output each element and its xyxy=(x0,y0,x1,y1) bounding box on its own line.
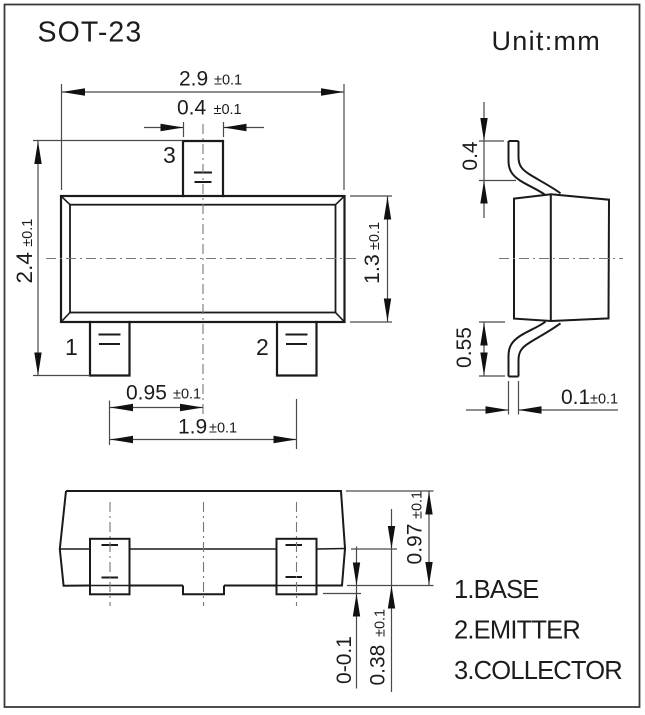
svg-text:1: 1 xyxy=(65,334,78,360)
svg-text:2.EMITTER: 2.EMITTER xyxy=(454,617,580,645)
svg-text:0.38: 0.38 xyxy=(367,645,390,686)
svg-text:0.95: 0.95 xyxy=(126,382,167,405)
svg-text:2.9: 2.9 xyxy=(179,68,208,91)
svg-text:2: 2 xyxy=(256,334,269,360)
svg-text:0.4: 0.4 xyxy=(459,141,482,171)
svg-text:0.1: 0.1 xyxy=(561,386,590,409)
svg-text:0.55: 0.55 xyxy=(453,327,476,368)
svg-text:±0.1: ±0.1 xyxy=(20,219,36,247)
svg-text:±0.1: ±0.1 xyxy=(214,102,242,118)
svg-text:SOT-23: SOT-23 xyxy=(38,17,143,49)
svg-text:Unit:mm: Unit:mm xyxy=(492,26,602,56)
svg-text:0.97: 0.97 xyxy=(404,524,427,565)
svg-text:±0.1: ±0.1 xyxy=(209,421,237,437)
svg-text:1.9: 1.9 xyxy=(178,416,207,439)
svg-text:0.4: 0.4 xyxy=(177,97,207,120)
svg-text:±0.1: ±0.1 xyxy=(367,222,383,250)
svg-text:±0.1: ±0.1 xyxy=(590,392,618,408)
svg-text:±0.1: ±0.1 xyxy=(214,73,242,89)
svg-text:±0.1: ±0.1 xyxy=(173,387,201,403)
svg-text:±0.1: ±0.1 xyxy=(373,609,389,637)
svg-text:1.3: 1.3 xyxy=(360,254,384,284)
svg-text:±0.1: ±0.1 xyxy=(410,491,426,519)
svg-text:3: 3 xyxy=(163,142,176,168)
svg-text:3.COLLECTOR: 3.COLLECTOR xyxy=(454,657,622,685)
svg-text:1.BASE: 1.BASE xyxy=(454,576,539,604)
svg-text:2.4: 2.4 xyxy=(12,252,37,283)
svg-text:0-0.1: 0-0.1 xyxy=(333,636,356,684)
